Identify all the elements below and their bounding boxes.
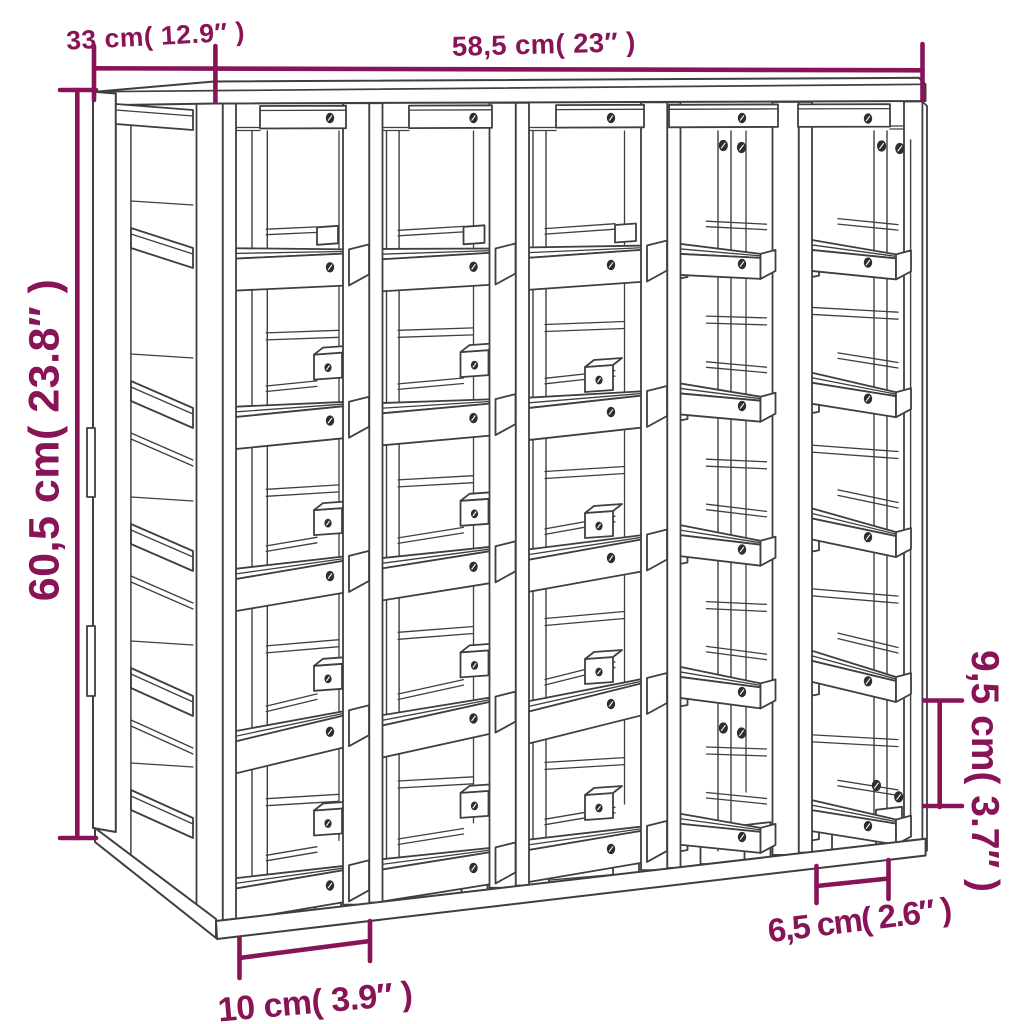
svg-text:58,5 cm( 23″ ): 58,5 cm( 23″ ) [451, 26, 636, 62]
svg-text:60,5 cm( 23.8″ ): 60,5 cm( 23.8″ ) [21, 279, 69, 602]
svg-text:9,5 cm( 3.7″ ): 9,5 cm( 3.7″ ) [963, 650, 1006, 892]
